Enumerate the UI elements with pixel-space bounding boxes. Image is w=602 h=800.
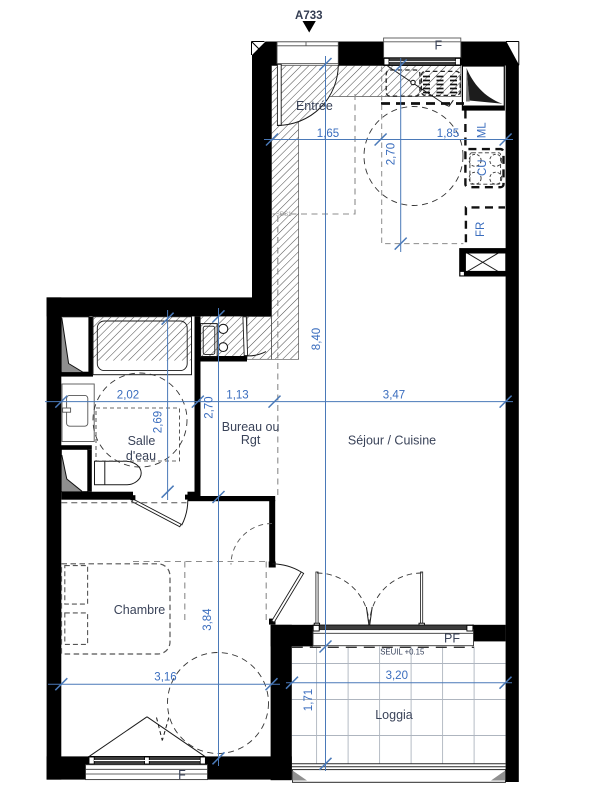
svg-text:3,16: 3,16 [154,672,176,684]
svg-text:F: F [178,768,186,782]
svg-text:FR: FR [475,222,487,237]
svg-text:ML: ML [476,122,488,139]
svg-text:8,40: 8,40 [311,328,323,350]
svg-text:Bureau ou: Bureau ou [222,420,280,434]
svg-text:Salle: Salle [128,434,156,448]
svg-text:Rgt: Rgt [241,433,261,447]
svg-text:1,71: 1,71 [303,689,315,711]
svg-text:Séjour / Cuisine: Séjour / Cuisine [348,434,436,448]
svg-text:2,70: 2,70 [386,143,398,165]
svg-text:Loggia: Loggia [375,708,413,722]
svg-text:d'eau: d'eau [126,449,156,463]
svg-text:2,02: 2,02 [117,390,139,402]
svg-text:1,65: 1,65 [317,128,339,140]
svg-text:3,20: 3,20 [386,670,408,682]
svg-text:3,84: 3,84 [202,608,214,631]
svg-text:Chambre: Chambre [114,603,165,617]
svg-text:SDS1: SDS1 [276,212,292,218]
svg-text:3,47: 3,47 [383,390,405,402]
svg-text:A733: A733 [295,10,323,22]
svg-text:CU: CU [477,159,489,176]
svg-text:Entrée: Entrée [296,99,333,113]
svg-text:1,13: 1,13 [226,390,248,402]
svg-text:SEUIL +0.15: SEUIL +0.15 [380,648,425,657]
svg-text:2,70: 2,70 [204,396,216,418]
svg-text:PF: PF [444,632,460,646]
svg-text:F: F [434,39,442,53]
svg-text:2,69: 2,69 [153,411,165,433]
svg-text:1,85: 1,85 [437,128,459,140]
